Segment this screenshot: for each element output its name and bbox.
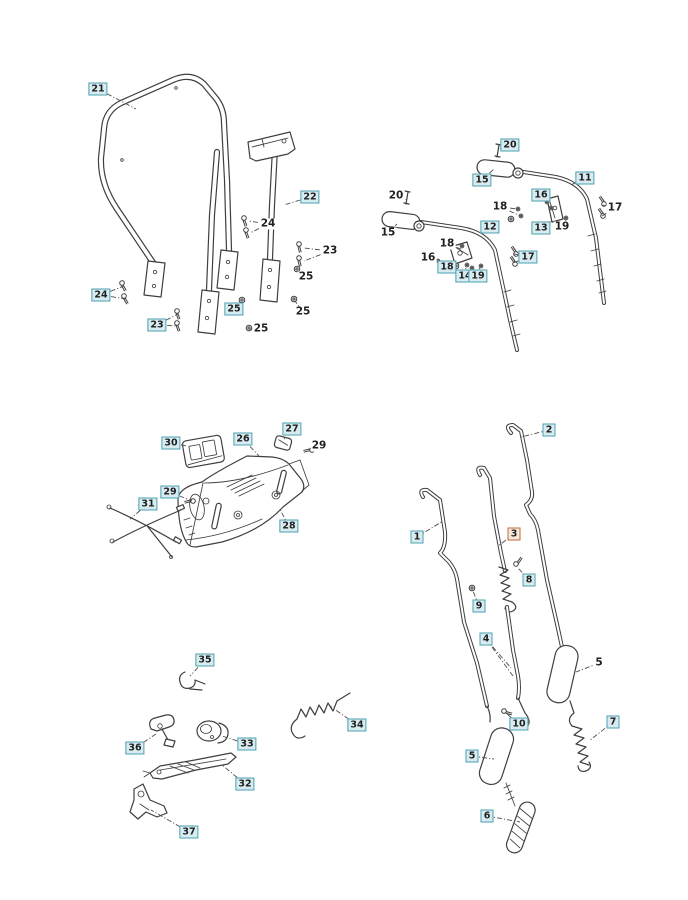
part-callout-15[interactable]: 15 [472, 174, 491, 187]
part-callout-36[interactable]: 36 [125, 742, 144, 755]
part-callout-35[interactable]: 35 [195, 654, 214, 667]
part-callout-15: 15 [380, 228, 397, 239]
part-callout-29[interactable]: 29 [160, 486, 179, 499]
part-callout-33[interactable]: 33 [237, 738, 256, 751]
part-callout-28[interactable]: 28 [279, 520, 298, 533]
part-callout-16[interactable]: 16 [531, 189, 550, 202]
part-callout-4[interactable]: 4 [480, 633, 493, 646]
part-callout-18: 18 [439, 239, 456, 250]
part-callout-20: 20 [388, 191, 405, 202]
part-callout-7[interactable]: 7 [607, 716, 620, 729]
part-callout-18: 18 [492, 202, 509, 213]
part-callout-19: 19 [554, 222, 571, 233]
part-callout-25: 25 [295, 307, 312, 318]
part-callout-17: 17 [607, 203, 624, 214]
part-callout-31[interactable]: 31 [138, 498, 157, 511]
part-callout-16: 16 [420, 253, 437, 264]
part-callout-20[interactable]: 20 [500, 139, 519, 152]
callout-layer: 2122242325242325252520151120161817131915… [0, 0, 688, 900]
parts-diagram-canvas: 2122242325242325252520151120161817131915… [0, 0, 688, 900]
part-callout-22[interactable]: 22 [300, 191, 319, 204]
part-callout-24[interactable]: 24 [91, 289, 110, 302]
part-callout-27[interactable]: 27 [282, 423, 301, 436]
part-callout-17[interactable]: 17 [518, 251, 537, 264]
part-callout-2[interactable]: 2 [543, 424, 556, 437]
part-callout-12[interactable]: 12 [480, 221, 499, 234]
part-callout-34[interactable]: 34 [347, 719, 366, 732]
part-callout-23[interactable]: 23 [147, 319, 166, 332]
part-callout-25[interactable]: 25 [224, 303, 243, 316]
part-callout-5: 5 [594, 658, 603, 669]
part-callout-25: 25 [298, 272, 315, 283]
part-callout-23: 23 [322, 246, 339, 257]
part-callout-37[interactable]: 37 [179, 826, 198, 839]
part-callout-13[interactable]: 13 [531, 222, 550, 235]
part-callout-1[interactable]: 1 [411, 531, 424, 544]
part-callout-30[interactable]: 30 [161, 437, 180, 450]
part-callout-21[interactable]: 21 [88, 83, 107, 96]
part-callout-9[interactable]: 9 [473, 600, 486, 613]
part-callout-3[interactable]: 3 [508, 528, 521, 541]
part-callout-8[interactable]: 8 [523, 574, 536, 587]
part-callout-11[interactable]: 11 [575, 172, 594, 185]
part-callout-10[interactable]: 10 [509, 718, 528, 731]
part-callout-18[interactable]: 18 [437, 261, 456, 274]
part-callout-24: 24 [260, 219, 277, 230]
part-callout-6[interactable]: 6 [481, 810, 494, 823]
part-callout-25: 25 [253, 324, 270, 335]
part-callout-29: 29 [311, 441, 328, 452]
part-callout-5[interactable]: 5 [466, 750, 479, 763]
part-callout-32[interactable]: 32 [235, 778, 254, 791]
part-callout-19[interactable]: 19 [468, 270, 487, 283]
part-callout-26[interactable]: 26 [233, 433, 252, 446]
